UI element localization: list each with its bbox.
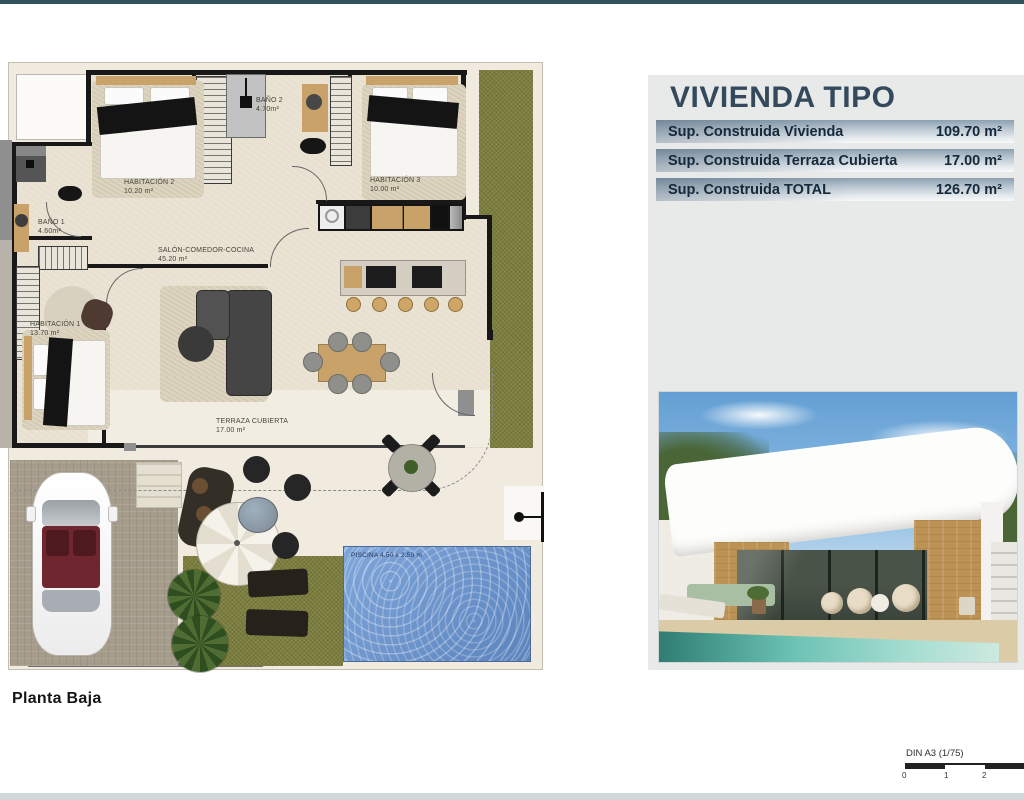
coffee-table: [178, 326, 214, 362]
dining-chair: [352, 374, 372, 394]
info-panel: VIVIENDA TIPO Sup. Construida Vivienda 1…: [648, 75, 1024, 670]
plot-left-footing-2: [0, 240, 12, 448]
dining-chair: [303, 352, 323, 372]
wall: [487, 215, 492, 335]
bottom-edge-bar: [0, 793, 1024, 800]
dining-table: [318, 344, 386, 382]
surface-row-label: Sup. Construida TOTAL: [668, 182, 831, 198]
bath1-shower-panel: [16, 146, 46, 156]
room-label-bano2: BAÑO 24.70m²: [256, 96, 283, 114]
scale-tick: 0: [902, 771, 906, 780]
surface-row-value: 17.00 m²: [944, 153, 1002, 169]
pouf: [272, 532, 299, 559]
kitchen-sink: [346, 206, 370, 229]
outdoor-shower-post: [541, 492, 544, 542]
sheet: PISCINA 4.50 x 2.50 m HABITACIÓN 210.20 …: [0, 0, 1024, 800]
bath1-toilet: [58, 186, 82, 201]
room-label-habitacion3: HABITACIÓN 310.00 m²: [370, 176, 421, 194]
porch: [16, 74, 90, 140]
scale-bar: DIN A3 (1/75) 0 1 2: [900, 748, 1024, 782]
pouf: [284, 474, 311, 501]
room-label-habitacion2: HABITACIÓN 210.20 m²: [124, 178, 175, 196]
kitchen-cabinet: [372, 206, 403, 229]
car-rear-glass: [42, 590, 100, 612]
wardrobe: [38, 246, 88, 270]
dining-chair: [328, 332, 348, 352]
room-label-habitacion1: HABITACIÓN 113.70 m²: [30, 320, 81, 338]
kitchen-cabinet: [404, 206, 430, 229]
bedroom2-headboard: [96, 76, 196, 85]
floor-plan: PISCINA 4.50 x 2.50 m HABITACIÓN 210.20 …: [0, 0, 650, 700]
outdoor-shower-arm: [522, 516, 542, 518]
scale-bar-segment: [905, 765, 945, 769]
egg-chair: [821, 592, 843, 614]
plan-caption: Planta Baja: [12, 690, 102, 708]
outdoor-sofa-cushion: [192, 478, 208, 494]
bath2-toilet: [300, 138, 326, 154]
bath2-sink: [306, 94, 322, 110]
sofa: [226, 290, 272, 396]
island-board: [344, 266, 362, 288]
washer-door: [325, 209, 339, 223]
wardrobe: [330, 76, 352, 166]
stove: [432, 206, 448, 229]
bar-stool: [448, 297, 463, 312]
sun-lounger: [247, 568, 308, 597]
bath1-vanity: [14, 204, 29, 252]
patio-plant: [404, 460, 418, 474]
surface-row-value: 109.70 m²: [936, 124, 1002, 140]
car-mirror: [108, 506, 118, 522]
surface-row-label: Sup. Construida Terraza Cubierta: [668, 153, 897, 169]
bedroom1-headboard: [24, 336, 32, 420]
wall: [86, 70, 91, 146]
planter-plant: [747, 586, 769, 600]
island-placemat: [412, 266, 442, 288]
room-label-terraza: TERRAZA CUBIERTA17.00 m²: [216, 417, 288, 435]
sun-lounger: [246, 609, 309, 637]
pool-label: PISCINA 4.50 x 2.50 m: [351, 552, 422, 560]
villa-photo: [658, 391, 1018, 663]
fridge: [450, 206, 462, 229]
wall: [86, 264, 268, 268]
panel-title: VIVIENDA TIPO: [670, 81, 895, 115]
surface-row: Sup. Construida Terraza Cubierta 17.00 m…: [656, 149, 1014, 172]
car-mirror: [26, 506, 36, 522]
wall-post: [487, 330, 493, 340]
wall: [86, 70, 467, 75]
dining-chair: [328, 374, 348, 394]
car-seat: [46, 530, 69, 556]
car-windshield: [42, 500, 100, 526]
palm-tree: [168, 570, 220, 622]
surface-row-value: 126.70 m²: [936, 182, 1002, 198]
palm-tree: [172, 616, 228, 672]
surface-row: Sup. Construida Vivienda 109.70 m²: [656, 120, 1014, 143]
cloud: [699, 400, 819, 430]
egg-chair: [892, 584, 920, 612]
island-placemat: [366, 266, 396, 288]
bar-stool: [346, 297, 361, 312]
bar-stool: [398, 297, 413, 312]
egg-chair: [847, 588, 873, 614]
surface-row: Sup. Construida TOTAL 126.70 m²: [656, 178, 1014, 201]
pool: PISCINA 4.50 x 2.50 m: [343, 546, 531, 662]
pot: [959, 597, 975, 615]
dining-chair: [380, 352, 400, 372]
outdoor-side-table: [238, 497, 278, 533]
bar-stool: [372, 297, 387, 312]
dining-chair: [352, 332, 372, 352]
scale-tick: 1: [944, 771, 948, 780]
scale-tick: 2: [982, 771, 986, 780]
plot-left-footing: [0, 140, 12, 240]
round-table: [871, 594, 889, 612]
parasol-pole: [234, 540, 240, 546]
bath1-shower-head: [26, 160, 34, 168]
pouf: [243, 456, 270, 483]
bath2-shower-stem: [245, 78, 247, 98]
room-label-bano1: BAÑO 14.60m²: [38, 218, 65, 236]
surface-row-label: Sup. Construida Vivienda: [668, 124, 843, 140]
outdoor-shower-pad: [504, 486, 544, 540]
wall-footing: [124, 443, 136, 451]
scale-bar-label: DIN A3 (1/75): [906, 748, 964, 759]
scale-bar-segment: [985, 765, 1024, 769]
room-label-salon: SALÓN-COMEDOR-COCINA45.20 m²: [158, 246, 254, 264]
bedroom3-headboard: [366, 76, 458, 85]
bar-stool: [424, 297, 439, 312]
wall: [12, 443, 124, 448]
bath1-sink: [15, 214, 28, 227]
car-seat: [73, 530, 96, 556]
